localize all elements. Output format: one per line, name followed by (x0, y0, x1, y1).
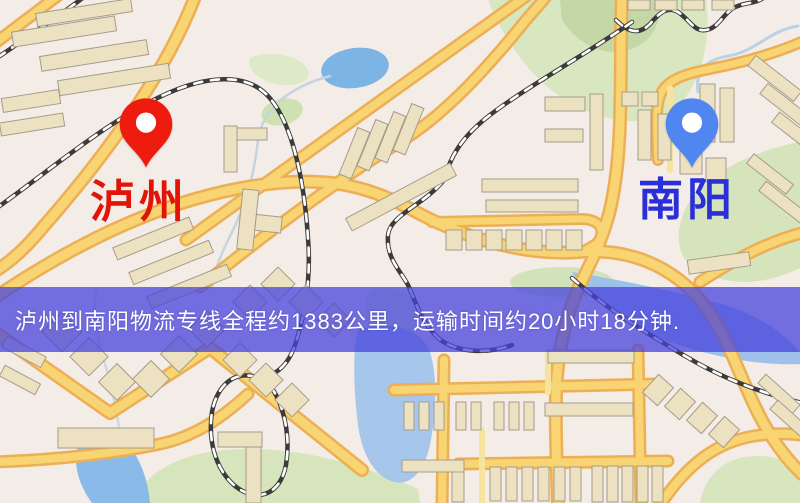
destination-city-label: 南阳 (638, 177, 736, 222)
destination-pin-icon (664, 97, 720, 169)
map-image (0, 0, 800, 503)
origin-pin-icon (118, 97, 174, 169)
origin-pin (118, 97, 174, 169)
origin-city-label: 泸州 (90, 179, 188, 224)
route-info-banner: 泸州到南阳物流专线全程约1383公里，运输时间约20小时18分钟. (0, 287, 800, 352)
route-info-text: 泸州到南阳物流专线全程约1383公里，运输时间约20小时18分钟. (0, 304, 680, 336)
destination-pin (664, 97, 720, 169)
route-map[interactable]: 泸州 南阳 泸州到南阳物流专线全程约1383公里，运输时间约20小时18分钟. (0, 0, 800, 503)
